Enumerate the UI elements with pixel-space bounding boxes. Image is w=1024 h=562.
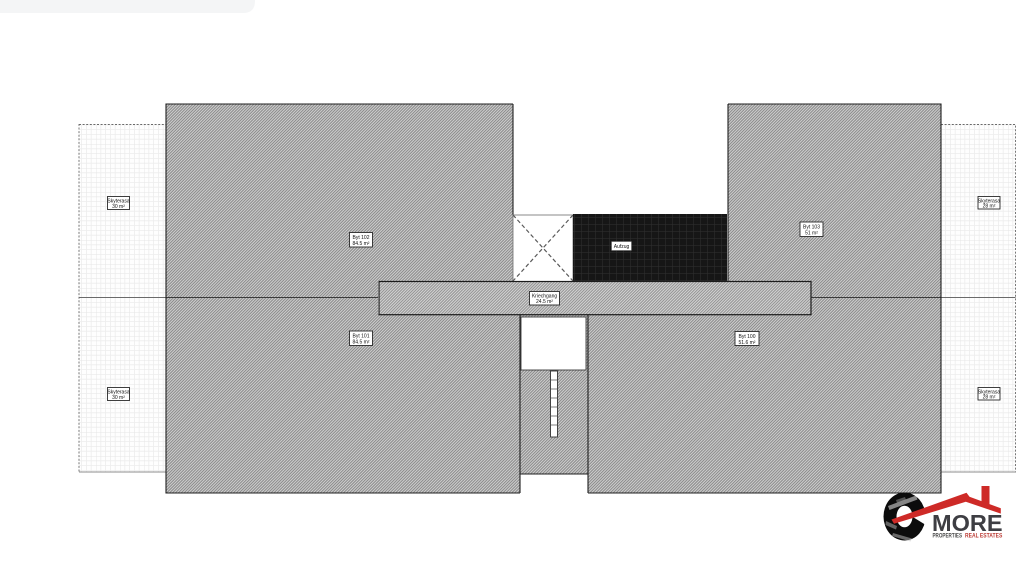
svg-text:REAL ESTATES: REAL ESTATES [965, 532, 1002, 539]
svg-text:30 m²: 30 m² [112, 204, 125, 210]
svg-text:24.5 m²: 24.5 m² [536, 299, 553, 305]
svg-text:28 m²: 28 m² [983, 204, 996, 210]
svg-text:Aufzug: Aufzug [614, 244, 630, 250]
svg-text:PROPERTIES: PROPERTIES [933, 532, 963, 539]
svg-text:84.5 m²: 84.5 m² [353, 241, 370, 247]
svg-text:51.6 m²: 51.6 m² [739, 340, 756, 346]
svg-text:84.5 m²: 84.5 m² [353, 339, 370, 345]
svg-text:30 m²: 30 m² [112, 395, 125, 401]
svg-text:28 m²: 28 m² [983, 395, 996, 401]
svg-text:51 m²: 51 m² [805, 230, 818, 236]
